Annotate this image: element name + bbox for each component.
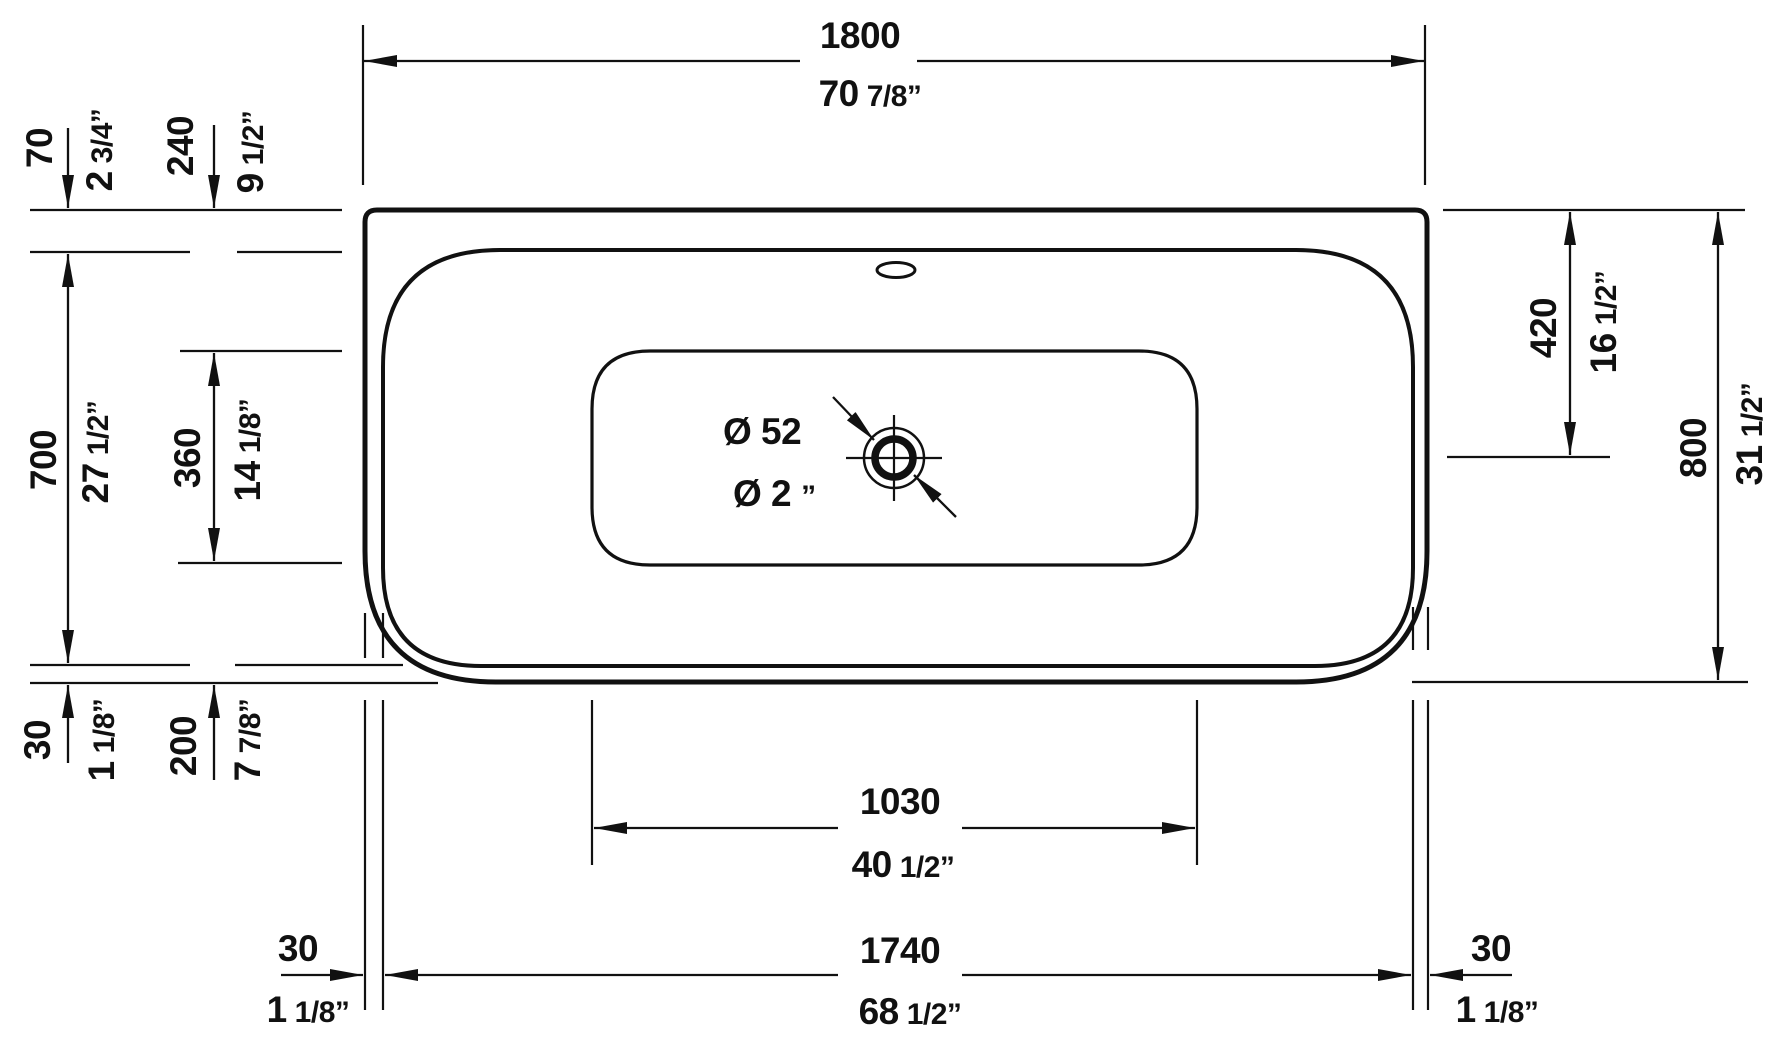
overflow-icon [877,263,915,278]
drain-leader-arrow-upper [833,397,874,440]
dim-drain-offset-mm: 420 [1523,298,1564,358]
tub-outer-outline [365,210,1427,682]
dim-well-width-inch: 401/2” [852,844,955,885]
dim-well-gap-top-inch: 91/2” [230,111,271,194]
dim-rim-gap-right-mm: 30 [1471,928,1511,969]
bathtub-dimension-diagram: 1800 707/8” 70 23/4” 240 91/2” 700 271/2… [0,0,1784,1042]
technical-drawing-canvas: 1800 707/8” 70 23/4” 240 91/2” 700 271/2… [0,0,1784,1042]
dim-rim-gap-top-mm: 70 [19,128,60,168]
dim-rim-depth-inch: 271/2” [75,401,116,504]
dim-rim-gap-bottom-inch: 11/8” [81,699,122,782]
drain-icon [833,397,956,517]
dim-well-gap-top-mm: 240 [160,116,201,176]
dim-drain-offset-inch: 161/2” [1583,271,1624,374]
dim-overall-depth-mm: 800 [1673,418,1714,478]
dim-drain-diameter-mm: Ø 52 [723,411,801,452]
dim-well-depth-inch: 141/8” [227,399,268,502]
dim-drain-diameter-inch: Ø 2” [733,473,816,514]
dim-well-gap-bottom-mm: 200 [163,716,204,776]
dim-overall-width-inch: 707/8” [819,73,922,114]
dim-rim-depth-mm: 700 [23,430,64,490]
dim-rim-gap-bottom-mm: 30 [17,720,58,760]
dim-well-width-mm: 1030 [860,781,940,822]
dim-rim-gap-left-mm: 30 [278,928,318,969]
dim-rim-width-inch: 681/2” [859,991,962,1032]
dim-well-depth-mm: 360 [167,428,208,488]
dim-overall-width-mm: 1800 [820,15,900,56]
dim-rim-gap-left-inch: 11/8” [267,989,350,1030]
drain-leader-arrow-lower [914,475,956,517]
dim-rim-gap-right-inch: 11/8” [1456,989,1539,1030]
dim-rim-width-mm: 1740 [860,930,940,971]
dim-rim-gap-top-inch: 23/4” [79,109,120,192]
dimension-lines [68,61,1718,975]
dim-overall-depth-inch: 311/2” [1729,383,1770,486]
dim-well-gap-bottom-inch: 77/8” [227,699,268,782]
